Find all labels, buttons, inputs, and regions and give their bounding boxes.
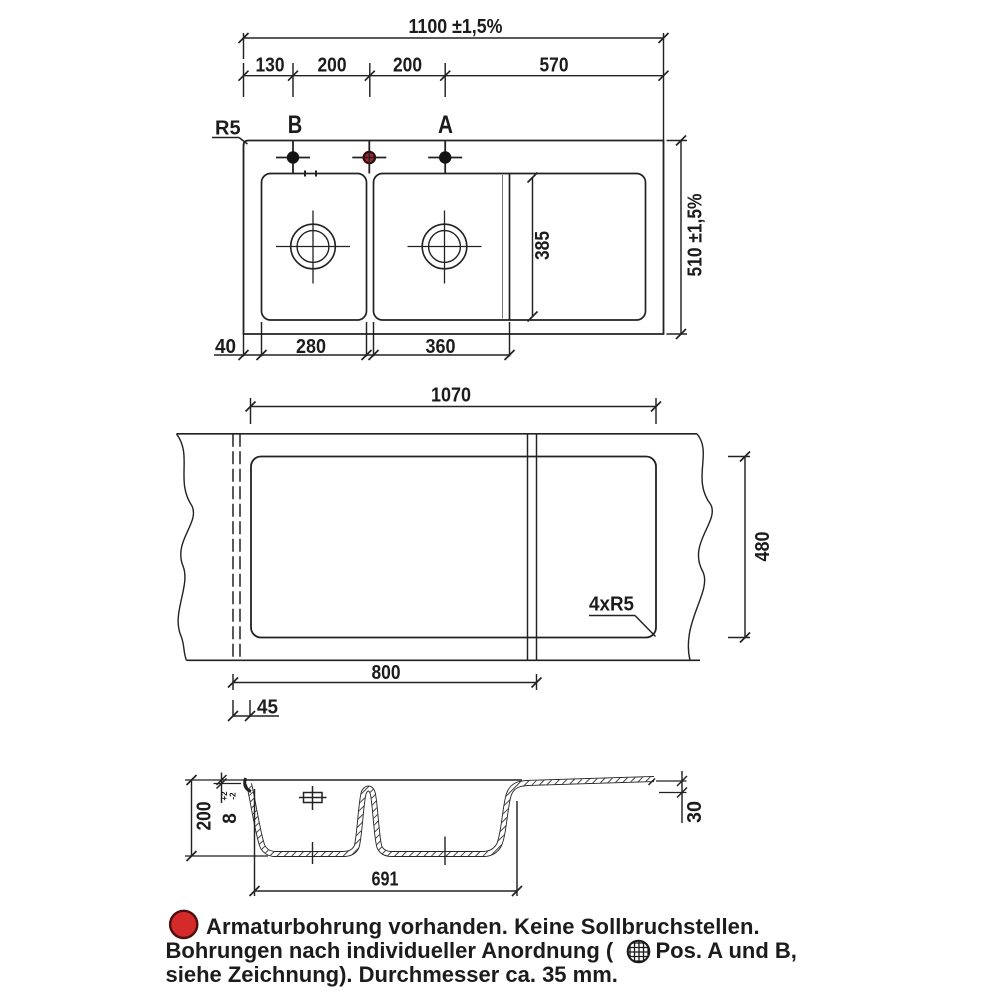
svg-text:R5: R5	[215, 118, 241, 140]
svg-text:360: 360	[426, 336, 456, 358]
svg-text:200: 200	[194, 802, 216, 831]
svg-text:4xR5: 4xR5	[589, 594, 634, 616]
svg-text:1070: 1070	[431, 385, 471, 407]
svg-text:510 ±1,5%: 510 ±1,5%	[685, 193, 707, 276]
svg-text:B: B	[288, 111, 303, 139]
svg-text:-2: -2	[229, 792, 238, 800]
svg-text:691: 691	[372, 869, 399, 891]
svg-text:Bohrungen nach individueller A: Bohrungen nach individueller Anordnung (	[166, 938, 614, 963]
svg-text:30: 30	[684, 801, 706, 823]
svg-text:Pos. A und B,: Pos. A und B,	[656, 938, 797, 963]
svg-text:1100 ±1,5%: 1100 ±1,5%	[409, 16, 503, 38]
svg-text:800: 800	[372, 662, 401, 684]
svg-text:280: 280	[296, 336, 326, 358]
svg-text:40: 40	[215, 336, 236, 358]
svg-text:480: 480	[752, 532, 774, 562]
svg-text:200: 200	[393, 55, 422, 77]
svg-text:130: 130	[256, 55, 285, 77]
svg-text:570: 570	[540, 55, 569, 77]
svg-text:Armaturbohrung vorhanden. Kein: Armaturbohrung vorhanden. Keine Sollbruc…	[206, 914, 760, 939]
svg-text:8: 8	[220, 813, 241, 824]
svg-text:siehe Zeichnung). Durchmesser: siehe Zeichnung). Durchmesser ca. 35 mm.	[166, 962, 618, 987]
svg-text:45: 45	[257, 697, 278, 719]
svg-text:A: A	[438, 111, 453, 139]
svg-text:385: 385	[532, 231, 554, 260]
svg-text:200: 200	[318, 55, 347, 77]
